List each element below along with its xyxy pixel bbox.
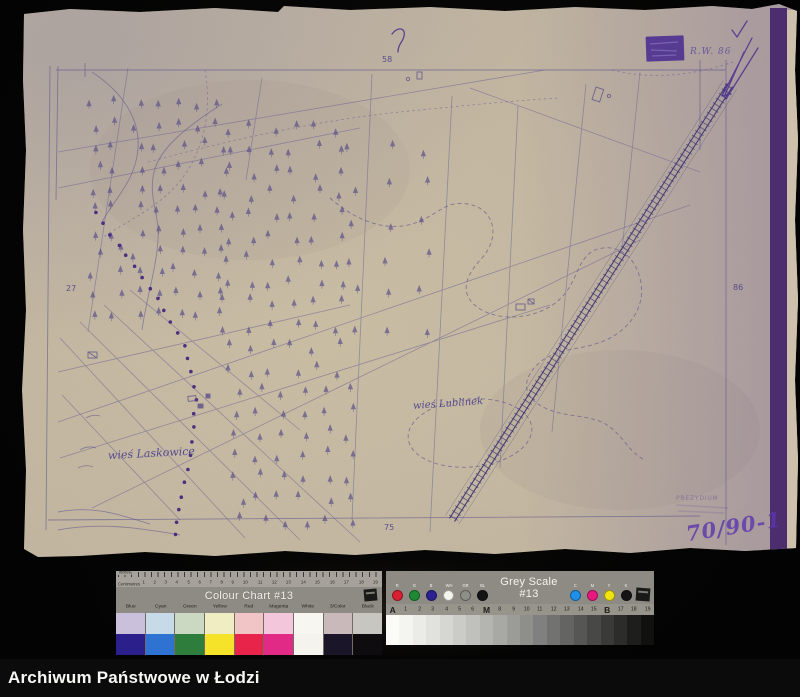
grey-step bbox=[587, 615, 600, 645]
ruler-number: 3 bbox=[165, 580, 167, 586]
parcel-number-right: 86 bbox=[733, 283, 743, 292]
color-swatch bbox=[205, 613, 234, 634]
color-swatch bbox=[116, 634, 145, 655]
color-swatch bbox=[353, 634, 382, 655]
scale-label: 10 bbox=[522, 607, 532, 612]
color-swatch bbox=[294, 634, 323, 655]
ruler-number: 7 bbox=[209, 580, 211, 586]
patch-dot-K: K bbox=[619, 583, 634, 601]
ruler-number: 6 bbox=[198, 580, 200, 586]
scale-label: 5 bbox=[455, 607, 465, 612]
ruler-number: 1 bbox=[142, 580, 144, 586]
grey-step bbox=[413, 615, 426, 645]
cmyk-patch-dots: CMYK bbox=[568, 583, 634, 601]
office-stamp-text: PREZYDIUM bbox=[676, 495, 719, 502]
grey-step bbox=[641, 615, 654, 645]
grey-step bbox=[533, 615, 546, 645]
color-swatch bbox=[294, 613, 323, 634]
color-column-label: Magenta bbox=[268, 604, 289, 610]
pale-swatch-row bbox=[116, 613, 382, 634]
scale-label: 4 bbox=[441, 607, 451, 612]
scale-label: 19 bbox=[642, 607, 652, 612]
ruler-number: 2 bbox=[154, 580, 156, 586]
chart-logo-patch bbox=[636, 588, 651, 602]
grey-scale-gradient bbox=[386, 615, 654, 645]
scale-label: B bbox=[601, 605, 614, 615]
color-chart-title: Colour Chart #13 bbox=[205, 590, 294, 602]
grey-step bbox=[440, 615, 453, 645]
color-swatch bbox=[324, 634, 353, 655]
scale-label: A bbox=[386, 605, 399, 615]
grey-step bbox=[627, 615, 640, 645]
scale-label: 17 bbox=[615, 607, 625, 612]
patch-dot-Y: Y bbox=[602, 583, 617, 601]
patch-dot-G: G bbox=[407, 583, 422, 601]
color-column-label: Cyan bbox=[150, 604, 171, 610]
grey-step bbox=[493, 615, 506, 645]
color-swatch bbox=[264, 634, 293, 655]
parcel-number-left: 27 bbox=[66, 284, 76, 293]
color-chart-header: Colour Chart #13 bbox=[116, 587, 382, 604]
grey-step bbox=[426, 615, 439, 645]
rgb-patch-dots: RGBWHGRBL bbox=[390, 583, 490, 601]
color-column-label: Black bbox=[357, 604, 378, 610]
ruler-number: 13 bbox=[286, 580, 291, 586]
parcel-number-top: 58 bbox=[382, 55, 392, 64]
chart-logo-patch bbox=[364, 588, 378, 601]
scale-label: 13 bbox=[562, 607, 572, 612]
grey-scale-chart: RGBWHGRBL Grey Scale #13 CMYK A123456M89… bbox=[386, 571, 654, 645]
color-swatch bbox=[264, 613, 293, 634]
grey-step bbox=[520, 615, 533, 645]
color-column-label: White bbox=[298, 604, 319, 610]
ruler-ticks bbox=[118, 572, 380, 577]
stamp-caption: R.W. 86 bbox=[689, 47, 732, 57]
ruler-number: 5 bbox=[187, 580, 189, 586]
color-column-label: Yellow bbox=[209, 604, 230, 610]
ruler-number: 11 bbox=[258, 580, 262, 586]
paper-edge-sliver bbox=[787, 10, 798, 555]
color-swatch bbox=[175, 613, 204, 634]
scale-label: 12 bbox=[548, 607, 558, 612]
ink-stamp bbox=[646, 35, 685, 61]
ruler-number: 16 bbox=[330, 580, 335, 586]
scale-label: 18 bbox=[629, 607, 639, 612]
patch-dot-B: B bbox=[424, 583, 439, 601]
grey-step bbox=[614, 615, 627, 645]
grey-step bbox=[547, 615, 560, 645]
grey-step bbox=[466, 615, 479, 645]
grey-step bbox=[453, 615, 466, 645]
ruler-number: 15 bbox=[315, 580, 320, 586]
color-swatch bbox=[146, 634, 175, 655]
patch-dot-GR: GR bbox=[458, 583, 473, 601]
color-swatch bbox=[353, 613, 382, 634]
ruler-number: 17 bbox=[344, 580, 349, 586]
patch-dot-WH: WH bbox=[441, 583, 456, 601]
ruler-number: 4 bbox=[176, 580, 178, 586]
color-column-labels: BlueCyanGreenYellowRedMagentaWhite3/Colo… bbox=[116, 604, 382, 613]
ruler-number: 10 bbox=[243, 580, 248, 586]
patch-dot-M: M bbox=[585, 583, 600, 601]
scale-label: 2 bbox=[414, 607, 424, 612]
archive-title: Archiwum Państwowe w Łodzi bbox=[8, 668, 260, 688]
grey-scale-numbers: A123456M89101112131415B171819 bbox=[386, 604, 654, 615]
ruler-number: 12 bbox=[272, 580, 277, 586]
solid-swatch-row bbox=[116, 634, 382, 655]
scale-label: 8 bbox=[495, 607, 505, 612]
scale-label: 6 bbox=[468, 607, 478, 612]
color-swatch bbox=[146, 613, 175, 634]
color-column-label: Red bbox=[239, 604, 260, 610]
scale-label: 9 bbox=[508, 607, 518, 612]
ruler-inches-label: Inches bbox=[118, 571, 131, 575]
color-swatch bbox=[324, 613, 353, 634]
ruler: Inches Centimetres 123456789101112131415… bbox=[116, 571, 382, 587]
grey-step bbox=[560, 615, 573, 645]
patch-dot-BL: BL bbox=[475, 583, 490, 601]
color-column-label: Blue bbox=[120, 604, 141, 610]
grey-scale-header: RGBWHGRBL Grey Scale #13 CMYK bbox=[386, 571, 654, 604]
color-column-label: Green bbox=[180, 604, 201, 610]
scale-label: M bbox=[480, 605, 493, 615]
scale-label: 14 bbox=[575, 607, 585, 612]
color-swatch bbox=[205, 634, 234, 655]
binding-stripe bbox=[770, 8, 787, 556]
grey-scale-title: Grey Scale #13 bbox=[492, 576, 566, 601]
color-swatch bbox=[235, 634, 264, 655]
ruler-number: 14 bbox=[301, 580, 306, 586]
ruler-number: 8 bbox=[220, 580, 222, 586]
scale-label: 1 bbox=[401, 607, 411, 612]
patch-dot-R: R bbox=[390, 583, 405, 601]
grey-step bbox=[386, 615, 399, 645]
color-swatch bbox=[116, 613, 145, 634]
scale-label: 3 bbox=[428, 607, 438, 612]
grey-step bbox=[480, 615, 493, 645]
ruler-number: 19 bbox=[373, 580, 378, 586]
grey-step bbox=[574, 615, 587, 645]
ruler-numbers: 12345678910111213141516171819 bbox=[142, 579, 379, 587]
ruler-number: 9 bbox=[232, 580, 234, 586]
grey-step bbox=[601, 615, 614, 645]
color-swatch bbox=[235, 613, 264, 634]
archive-scan-viewer: wieś Laskowice wieś Lublinek 58 27 75 86… bbox=[0, 0, 800, 697]
grey-step bbox=[507, 615, 520, 645]
color-chart: Inches Centimetres 123456789101112131415… bbox=[116, 571, 382, 655]
color-swatch bbox=[175, 634, 204, 655]
scale-label: 15 bbox=[589, 607, 599, 612]
parcel-number-bottom: 75 bbox=[384, 523, 394, 532]
grey-step bbox=[399, 615, 412, 645]
footer-bar: Archiwum Państwowe w Łodzi bbox=[0, 659, 800, 697]
color-column-label: 3/Color bbox=[327, 604, 348, 610]
scale-label: 11 bbox=[535, 607, 545, 612]
ruler-number: 18 bbox=[359, 580, 364, 586]
patch-dot-C: C bbox=[568, 583, 583, 601]
